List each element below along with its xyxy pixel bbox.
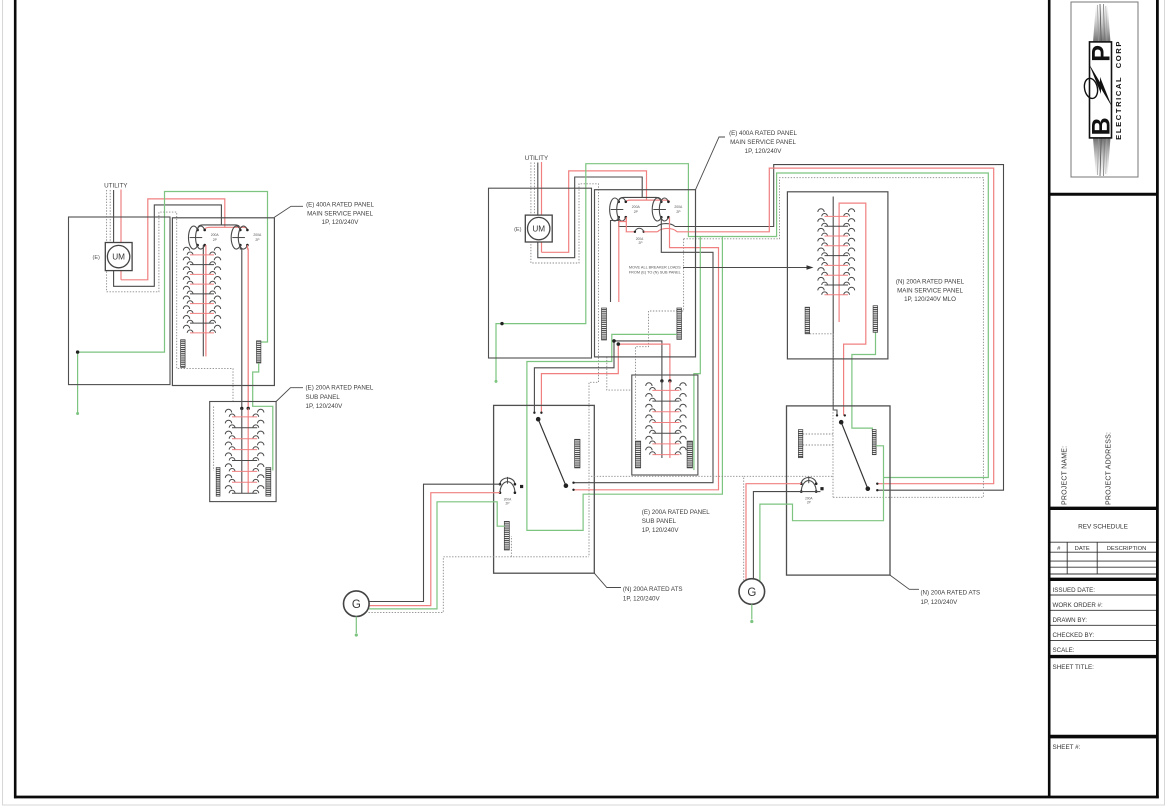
svg-text:(E): (E) [514,227,522,233]
svg-text:DESCRIPTION: DESCRIPTION [1107,546,1147,552]
svg-text:MOVE ALL BREAKER LOADS: MOVE ALL BREAKER LOADS [629,265,681,269]
svg-text:SHEET TITLE:: SHEET TITLE: [1053,664,1095,671]
svg-text:G: G [747,587,756,599]
svg-text:2P: 2P [255,238,260,242]
svg-text:2P: 2P [639,241,643,245]
svg-text:(E) 400A RATED PANEL: (E) 400A RATED PANEL [729,130,797,137]
svg-text:SCALE:: SCALE: [1053,647,1075,654]
svg-text:MAIN SERVICE PANEL: MAIN SERVICE PANEL [307,211,373,218]
svg-text:ELECTRICAL CORP: ELECTRICAL CORP [1114,40,1123,140]
svg-text:DRAWN BY:: DRAWN BY: [1053,617,1088,624]
svg-text:FROM (E) TO (N) SUB PANEL: FROM (E) TO (N) SUB PANEL [629,270,681,274]
svg-text:WORK ORDER #:: WORK ORDER #: [1053,602,1103,609]
svg-text:(N) 200A RATED ATS: (N) 200A RATED ATS [623,586,683,593]
svg-text:MAIN SERVICE PANEL: MAIN SERVICE PANEL [897,287,963,294]
svg-text:G: G [352,599,361,611]
svg-text:1P, 120/240V: 1P, 120/240V [306,403,344,410]
svg-text:P: P [1088,45,1116,62]
svg-text:1P, 120/240V: 1P, 120/240V [623,595,661,602]
svg-text:DATE: DATE [1075,546,1090,552]
svg-text:200A: 200A [253,233,262,237]
svg-text:SUB PANEL: SUB PANEL [642,518,677,525]
svg-text:SHEET #:: SHEET #: [1053,744,1081,751]
svg-text:200A: 200A [674,205,683,209]
svg-text:(E) 400A RATED PANEL: (E) 400A RATED PANEL [306,202,374,209]
svg-text:(E) 200A RATED PANEL: (E) 200A RATED PANEL [306,385,374,392]
svg-text:1P, 120/240V MLO: 1P, 120/240V MLO [904,296,956,303]
svg-text:CHECKED BY:: CHECKED BY: [1053,632,1095,639]
svg-text:UTILITY: UTILITY [104,182,128,189]
svg-text:1P, 120/240V: 1P, 120/240V [642,527,680,534]
svg-text:(E): (E) [92,255,100,261]
svg-text:(N) 200A RATED ATS: (N) 200A RATED ATS [921,590,981,597]
svg-text:2P: 2P [676,210,681,214]
svg-text:1P, 120/240V: 1P, 120/240V [322,219,360,226]
svg-text:UM: UM [112,253,125,262]
svg-text:1P, 120/240V: 1P, 120/240V [745,148,783,155]
svg-text:200A: 200A [211,233,220,237]
svg-text:MAIN SERVICE PANEL: MAIN SERVICE PANEL [730,139,796,146]
svg-text:PROJECT NAME:: PROJECT NAME: [1062,446,1069,505]
svg-text:ISSUED DATE:: ISSUED DATE: [1053,587,1096,594]
svg-text:(E) 200A RATED PANEL: (E) 200A RATED PANEL [642,509,710,516]
svg-text:(N) 200A RATED PANEL: (N) 200A RATED PANEL [896,279,965,286]
svg-text:UTILITY: UTILITY [525,155,549,162]
svg-text:2P: 2P [213,238,218,242]
svg-text:2P: 2P [807,501,811,505]
svg-text:1P, 120/240V: 1P, 120/240V [921,599,959,606]
svg-text:UM: UM [532,225,545,234]
svg-text:200A: 200A [632,205,641,209]
svg-text:B: B [1088,117,1116,135]
svg-text:SUB PANEL: SUB PANEL [306,394,341,401]
svg-text:PROJECT ADDRESS:: PROJECT ADDRESS: [1106,432,1113,505]
svg-text:REV SCHEDULE: REV SCHEDULE [1078,524,1128,531]
svg-text:2P: 2P [506,502,510,506]
svg-text:2P: 2P [634,210,639,214]
